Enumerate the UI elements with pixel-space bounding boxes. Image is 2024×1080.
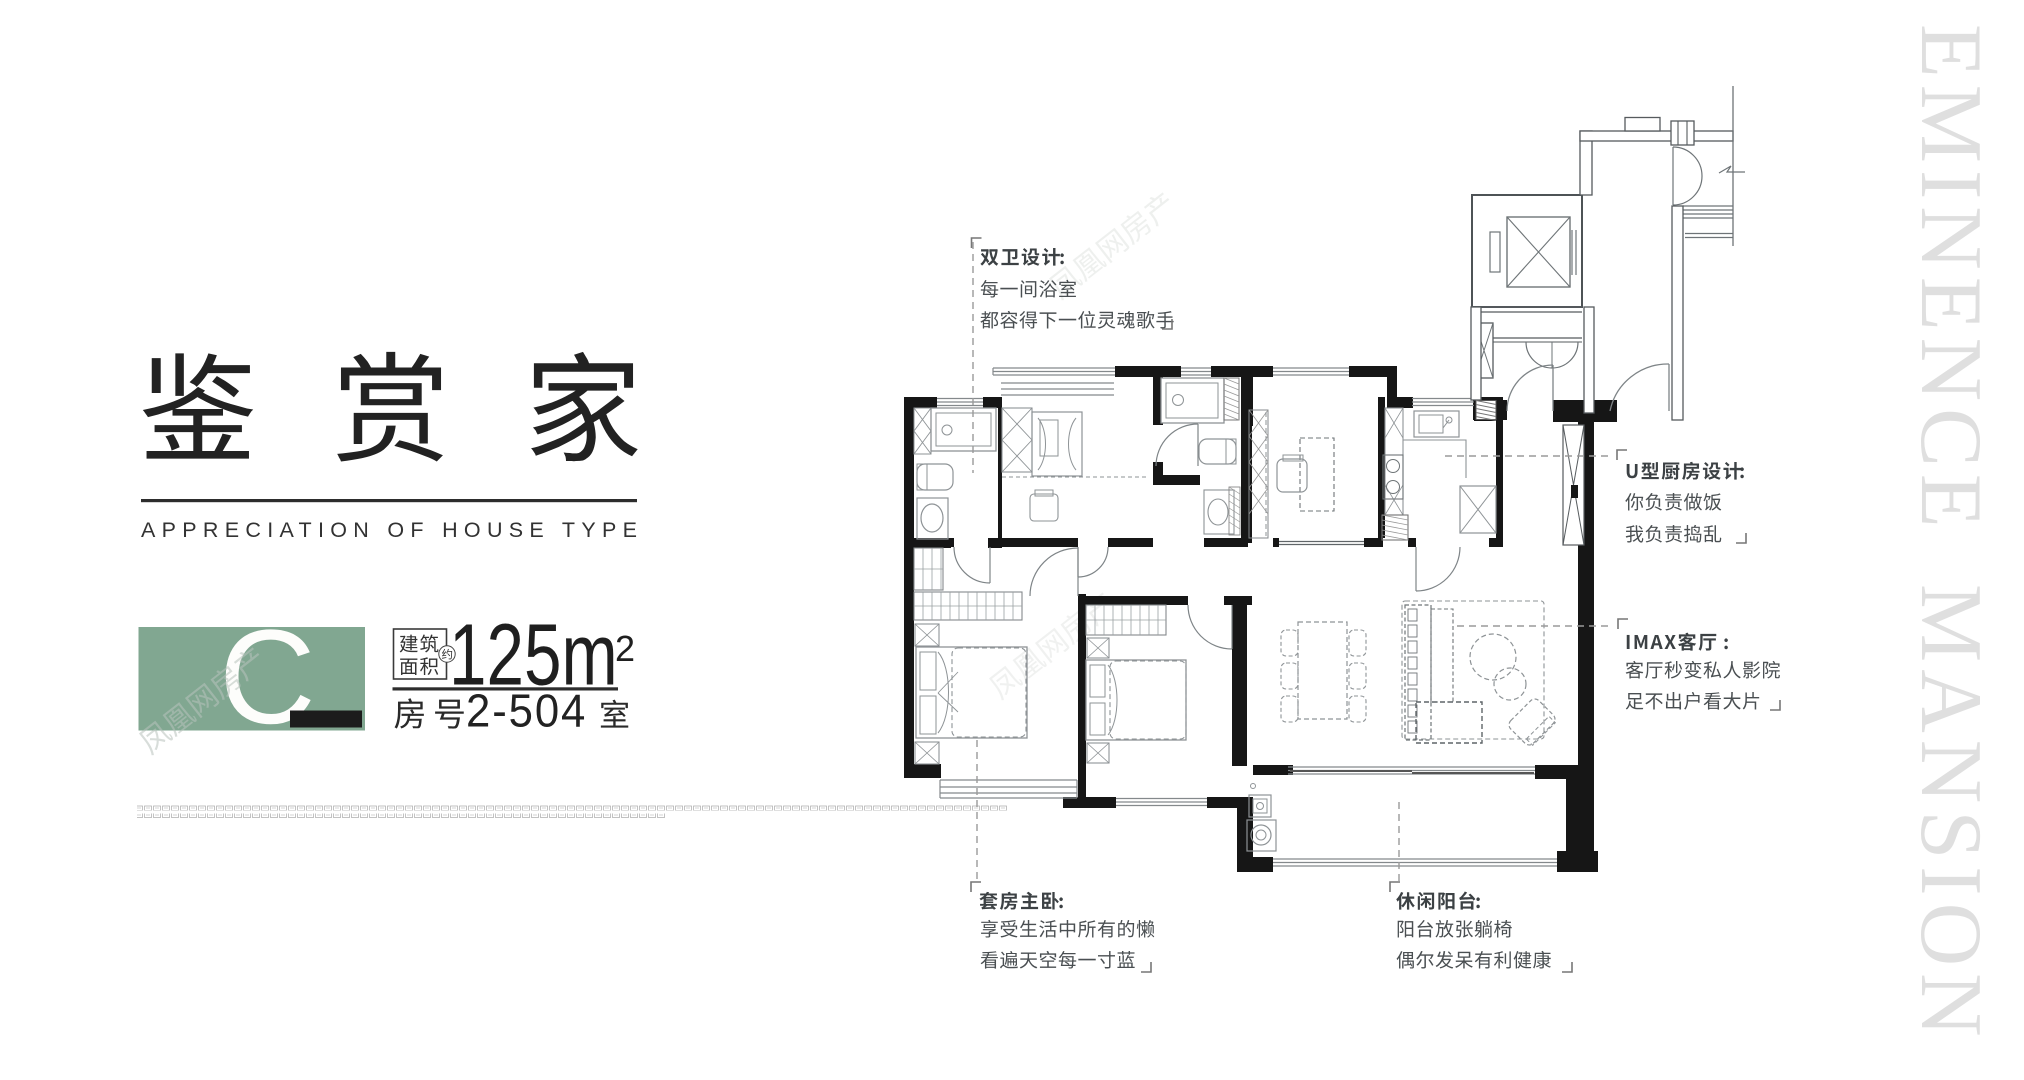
svg-text:APPRECIATION OF HOUSE TYPE: APPRECIATION OF HOUSE TYPE [141, 518, 643, 542]
svg-text:MANSION: MANSION [1902, 584, 1999, 1044]
svg-text:2-504: 2-504 [466, 684, 587, 736]
svg-text:EMINENCE: EMINENCE [1902, 24, 1999, 535]
svg-text:2: 2 [615, 628, 635, 669]
